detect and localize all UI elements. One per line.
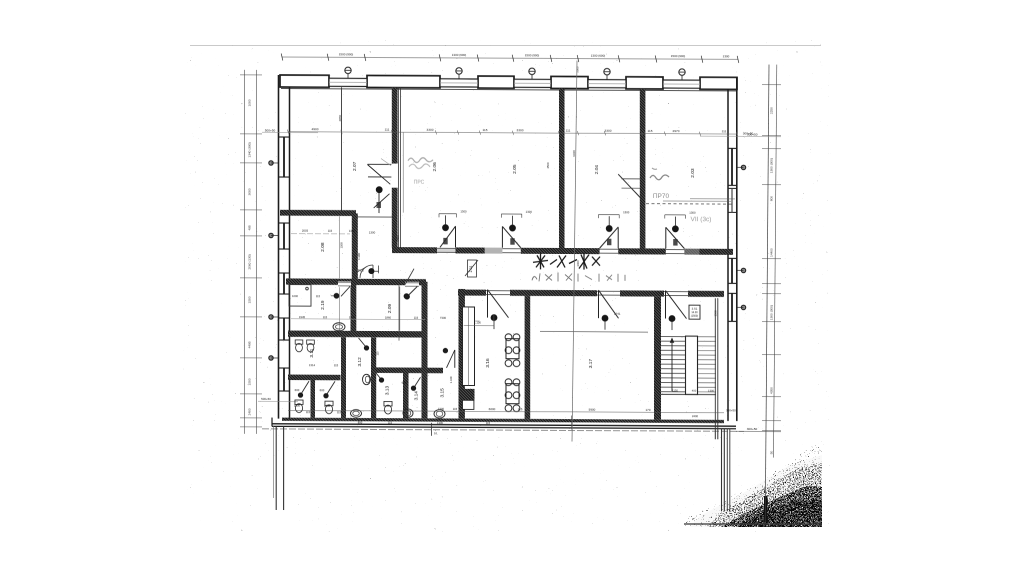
svg-text:300+50: 300+50 [726, 408, 736, 412]
svg-text:3.11: 3.11 [309, 348, 315, 357]
svg-text:4500: 4500 [546, 162, 550, 169]
svg-text:600: 600 [402, 381, 407, 385]
svg-text:1500: 1500 [340, 242, 344, 248]
svg-text:4350: 4350 [769, 387, 773, 394]
svg-text:1500: 1500 [248, 378, 252, 385]
svg-text:5900: 5900 [589, 408, 596, 412]
svg-text:1300: 1300 [438, 407, 445, 411]
svg-text:115: 115 [648, 129, 653, 133]
svg-text:1300: 1300 [369, 230, 376, 234]
svg-text:3.14: 3.14 [414, 391, 420, 401]
svg-text:2.09: 2.09 [387, 304, 393, 314]
svg-text:1300: 1300 [623, 210, 630, 214]
svg-text:2.08: 2.08 [320, 242, 326, 252]
svg-text:1300 (600): 1300 (600) [591, 54, 606, 58]
svg-text:3.16: 3.16 [485, 358, 491, 368]
svg-text:2.03: 2.03 [690, 168, 696, 178]
svg-text:2.05: 2.05 [512, 164, 518, 174]
svg-text:600: 600 [320, 388, 325, 392]
svg-text:115: 115 [306, 410, 311, 414]
svg-text:VII (3с): VII (3с) [691, 216, 712, 223]
svg-text:500+50: 500+50 [261, 397, 271, 401]
svg-text:115: 115 [334, 363, 339, 367]
svg-text:3.51: 3.51 [692, 307, 698, 311]
svg-text:1500: 1500 [396, 235, 400, 242]
svg-text:300+50: 300+50 [747, 427, 758, 431]
svg-text:1300: 1300 [460, 209, 467, 213]
svg-text:400: 400 [692, 389, 697, 393]
svg-text:1.100: 1.100 [449, 376, 453, 383]
svg-text:3300: 3300 [427, 128, 434, 132]
svg-text:600: 600 [295, 388, 300, 392]
svg-text:2.19: 2.19 [320, 300, 326, 310]
svg-text:6000: 6000 [489, 407, 496, 411]
svg-text:115: 115 [316, 294, 321, 298]
svg-text:1300: 1300 [349, 229, 356, 233]
svg-text:800: 800 [769, 196, 773, 201]
svg-text:1945: 1945 [299, 315, 306, 319]
svg-text:495: 495 [248, 225, 252, 230]
svg-text:1860: 1860 [385, 316, 392, 320]
svg-text:1300 (600): 1300 (600) [452, 53, 467, 57]
svg-text:1300: 1300 [437, 421, 443, 425]
svg-text:1500: 1500 [714, 310, 718, 317]
svg-text:115: 115 [328, 229, 333, 233]
svg-text:1000: 1000 [248, 99, 252, 106]
svg-text:1000: 1000 [292, 294, 298, 298]
svg-text:3000: 3000 [576, 260, 580, 266]
svg-text:300+50: 300+50 [747, 132, 758, 136]
svg-text:3000: 3000 [248, 188, 252, 195]
svg-text:7300: 7300 [440, 316, 447, 320]
svg-text:16: 16 [434, 431, 437, 435]
svg-text:50: 50 [769, 451, 773, 455]
svg-text:1300: 1300 [526, 210, 533, 214]
svg-text:115: 115 [453, 407, 458, 411]
svg-text:1300: 1300 [723, 54, 730, 58]
svg-text:5000: 5000 [576, 66, 580, 73]
svg-text:2.06: 2.06 [432, 162, 438, 172]
svg-text:4900: 4900 [312, 127, 319, 131]
svg-text:111: 111 [385, 128, 390, 132]
svg-text:1741: 1741 [614, 312, 621, 316]
svg-text:800: 800 [358, 420, 363, 424]
svg-text:1500 (900): 1500 (900) [339, 52, 354, 56]
svg-text:14400: 14400 [769, 248, 773, 257]
svg-text:3300: 3300 [517, 128, 524, 132]
svg-text:2.07: 2.07 [352, 161, 358, 171]
svg-text:115: 115 [518, 407, 523, 411]
svg-text:1500 (900): 1500 (900) [525, 53, 540, 57]
svg-text:1.300: 1.300 [357, 253, 361, 260]
svg-text:3.13: 3.13 [385, 386, 391, 396]
svg-text:115: 115 [376, 351, 380, 356]
svg-text:1340 (390): 1340 (390) [248, 142, 252, 157]
svg-text:115: 115 [483, 128, 488, 132]
svg-text:2970: 2970 [673, 129, 680, 133]
svg-text:1300 (300): 1300 (300) [769, 158, 773, 173]
svg-text:115: 115 [337, 410, 342, 414]
svg-text:ПР70: ПР70 [653, 193, 670, 200]
svg-text:2250: 2250 [769, 107, 773, 114]
svg-text:1500 (900): 1500 (900) [671, 54, 686, 58]
svg-text:1500: 1500 [294, 404, 300, 408]
svg-text:2.04: 2.04 [594, 165, 600, 175]
svg-text:1300: 1300 [708, 389, 714, 393]
svg-text:3300: 3300 [605, 129, 612, 133]
svg-text:1314: 1314 [309, 363, 316, 367]
svg-text:115: 115 [486, 421, 491, 425]
svg-text:1300: 1300 [689, 211, 696, 215]
svg-text:6460: 6460 [572, 150, 576, 157]
svg-text:1400: 1400 [324, 404, 330, 408]
svg-text:1500: 1500 [248, 296, 252, 303]
svg-text:2400: 2400 [692, 414, 699, 418]
svg-text:4950: 4950 [338, 115, 342, 122]
svg-text:500+50: 500+50 [265, 128, 276, 132]
svg-text:170: 170 [645, 408, 650, 412]
svg-text:115: 115 [388, 421, 393, 425]
svg-text:2060 (130): 2060 (130) [248, 254, 252, 269]
svg-text:1800: 1800 [349, 315, 356, 319]
svg-text:1300 (300): 1300 (300) [769, 305, 773, 320]
svg-text:111: 111 [722, 129, 727, 133]
svg-text:1.100: 1.100 [474, 321, 481, 325]
svg-text:(1500): (1500) [691, 315, 698, 318]
svg-text:1130: 1130 [672, 389, 678, 393]
svg-text:3.17: 3.17 [588, 359, 594, 369]
svg-text:2400: 2400 [248, 408, 252, 415]
svg-text:111: 111 [566, 128, 571, 132]
svg-text:3.15: 3.15 [440, 388, 446, 398]
svg-text:2003: 2003 [302, 229, 309, 233]
svg-text:3.12: 3.12 [357, 357, 363, 367]
svg-text:ПРС: ПРС [414, 180, 425, 186]
svg-text:4495: 4495 [248, 341, 252, 348]
svg-text:115: 115 [323, 315, 328, 319]
svg-text:115: 115 [414, 316, 419, 320]
